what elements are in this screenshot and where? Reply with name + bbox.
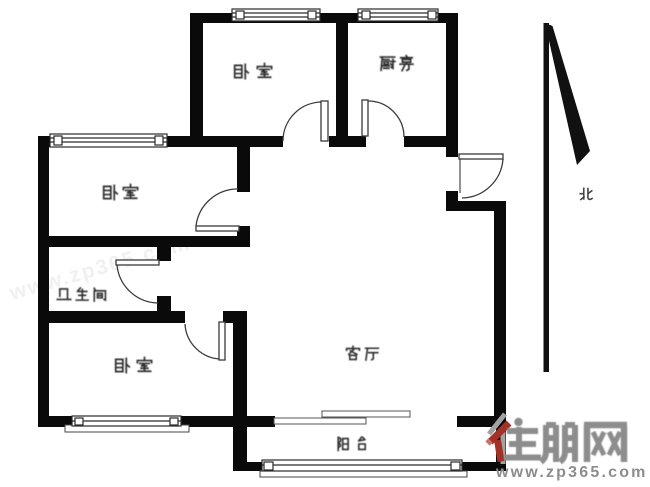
- svg-text:www.zp365.com: www.zp365.com: [495, 464, 648, 481]
